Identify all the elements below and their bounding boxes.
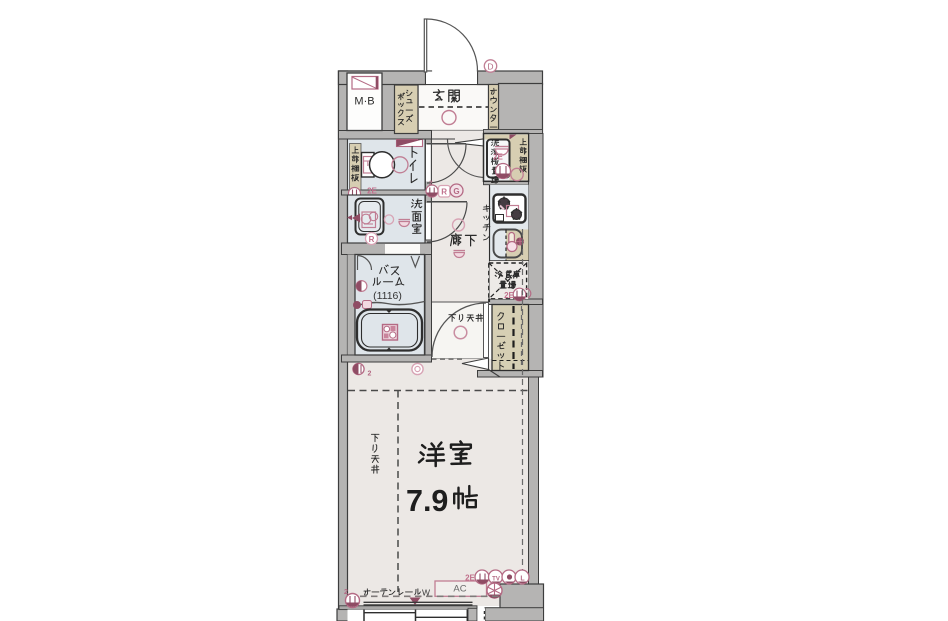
svg-text:L: L bbox=[520, 576, 525, 583]
svg-text:AC: AC bbox=[453, 584, 466, 595]
svg-text:G: G bbox=[453, 187, 459, 196]
svg-text:TV: TV bbox=[492, 576, 500, 582]
svg-text:R: R bbox=[369, 235, 375, 244]
svg-text:(1116): (1116) bbox=[373, 290, 402, 302]
svg-text:D: D bbox=[487, 61, 493, 71]
svg-text:2: 2 bbox=[368, 371, 372, 378]
svg-text:2E: 2E bbox=[465, 574, 475, 583]
svg-text:M·B: M·B bbox=[354, 96, 374, 108]
svg-text:2E: 2E bbox=[493, 153, 503, 162]
svg-text:7.9: 7.9 bbox=[406, 484, 448, 518]
svg-text:R: R bbox=[441, 188, 447, 197]
svg-text:W: W bbox=[422, 587, 430, 597]
svg-text:2E: 2E bbox=[367, 187, 377, 196]
